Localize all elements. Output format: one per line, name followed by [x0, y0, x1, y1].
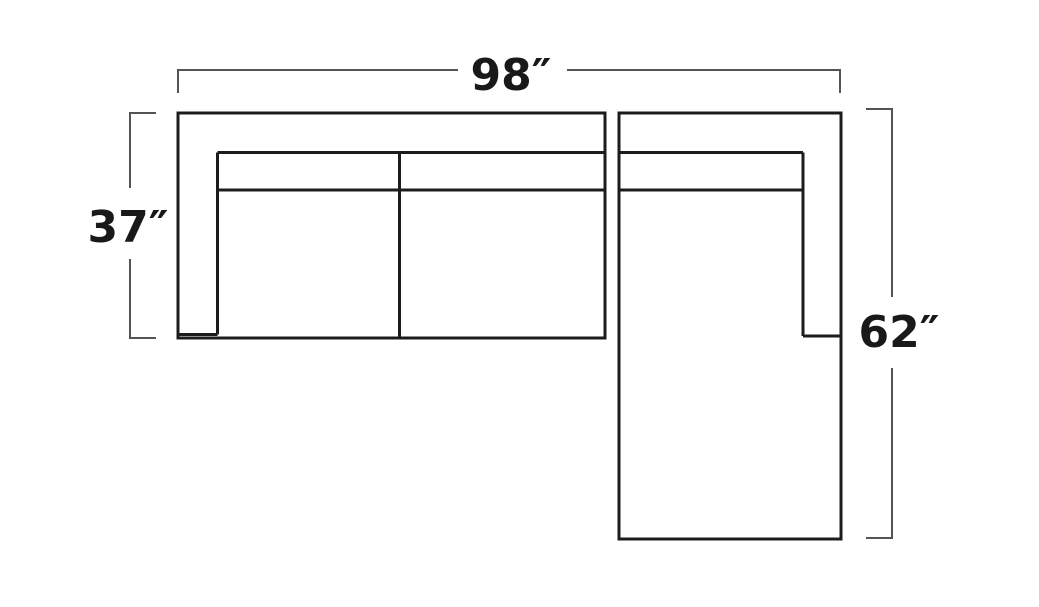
chaise-dimension-label: 62″ [859, 307, 940, 358]
chaise-dimension-line-bottom [866, 368, 892, 538]
chaise-body-outline [619, 113, 841, 539]
dimension-overall-width: 98″ [178, 50, 840, 101]
chaise-dimension-line-top [866, 109, 892, 297]
depth-dimension-label: 37″ [88, 202, 169, 253]
chaise-section-right [619, 113, 843, 539]
sofa-body-outline [178, 113, 605, 338]
diagram-canvas: 98″ 37″ 62″ [0, 0, 1039, 607]
depth-dimension-line-top [130, 113, 156, 188]
width-dimension-label: 98″ [471, 50, 552, 101]
sofa-section-left [177, 113, 606, 338]
depth-dimension-line-bottom [130, 259, 156, 338]
width-dimension-line-left [178, 70, 458, 93]
dimension-sofa-depth: 37″ [88, 113, 169, 338]
dimension-chaise-length: 62″ [859, 109, 940, 538]
sectional-sofa-diagram: 98″ 37″ 62″ [0, 0, 1039, 607]
width-dimension-line-right [567, 70, 840, 93]
